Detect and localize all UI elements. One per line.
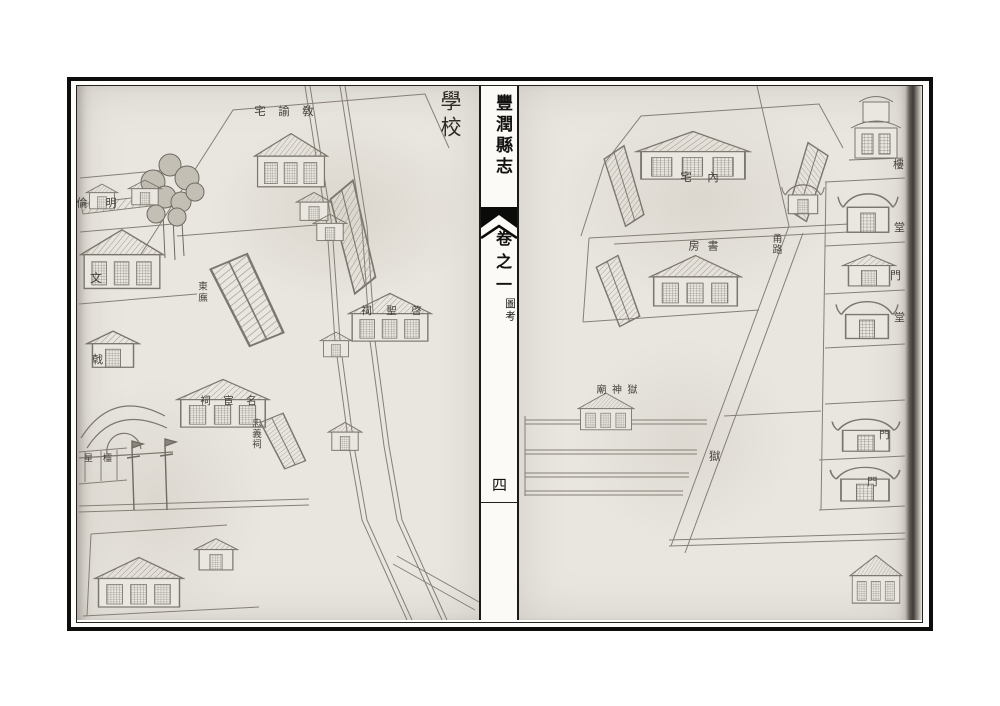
spine-section: 圖考 [503, 298, 518, 323]
ji-gate-label: 戟 [92, 351, 103, 367]
minglun-hall-label: 明倫 [79, 197, 125, 212]
right-map-drawing [519, 86, 905, 620]
east-wing-building [211, 254, 284, 346]
left-map-drawing [77, 86, 479, 620]
study-label: 書房 [677, 240, 722, 255]
upper-hall-building [838, 194, 898, 232]
upper-gate-label: 門 [890, 267, 901, 283]
spine-folio-number: 四 [492, 474, 507, 495]
right-page-yamen-map: 內宅 書房 甬路 獄神廟 獄 樓 堂 門 堂 門 門 [519, 86, 905, 620]
jail-god-temple-building [578, 393, 634, 430]
zhongyi-shrine-building [260, 413, 305, 469]
upper-hall-label: 堂 [894, 219, 905, 235]
page-edge-shadow [905, 86, 922, 620]
jail-label: 獄 [709, 448, 721, 464]
minghuan-shrine-label: 名宦祠 [187, 395, 262, 410]
bottom-right-building [850, 555, 902, 603]
tree-clump [141, 154, 204, 260]
mid-gate-building [832, 419, 900, 451]
jail-god-temple-label: 獄神廟 [590, 384, 638, 398]
mid-gate-label: 門 [879, 427, 890, 442]
lower-compound-hall [95, 558, 183, 608]
residence-west-annex [604, 146, 644, 227]
east-wing-label: 東廡 [194, 281, 208, 304]
tower-label: 樓 [893, 156, 904, 172]
qisheng-shrine-label: 啓聖祠 [348, 305, 428, 320]
instructor-residence-label: 敎諭宅 [238, 105, 320, 121]
instructor-residence-hall [255, 134, 328, 187]
mid-hall-label: 堂 [894, 309, 905, 325]
scanned-gazetteer-page: { "spine": { "title": "豐潤縣志", "volume": … [0, 0, 1000, 706]
pan-pond-bridge [79, 406, 173, 458]
wen-temple-label: 文 [90, 269, 102, 286]
inner-residence-label: 內宅 [666, 171, 726, 187]
left-page-school-map: 學校 敎諭宅 明倫 文 東廡 啓聖祠 名宦祠 忠義祠 戟 欞星 [77, 86, 479, 620]
lower-gate-building [830, 467, 900, 501]
mid-hall-building [836, 302, 898, 339]
lingxing-gate-poles [127, 439, 176, 510]
book-spine-column: 豐潤縣志 卷之一 圖考 四 [479, 86, 519, 620]
spine-title: 豐潤縣志 [490, 94, 515, 178]
road-gate-tower [320, 332, 352, 357]
lingxing-gate-label: 欞星 [77, 453, 115, 466]
left-map-title: 學校 [435, 90, 465, 142]
spine-divider-line [481, 502, 517, 503]
road-gate-tower [328, 422, 362, 450]
study-annex [596, 255, 639, 326]
path-label: 甬路 [768, 233, 783, 255]
upper-gate-building [843, 255, 895, 286]
lower-compound-gate [195, 539, 238, 570]
zhongyi-shrine-label: 忠義祠 [248, 418, 262, 450]
corner-tower-building [849, 97, 903, 161]
spine-volume: 卷之一 [490, 230, 514, 299]
study-hall [650, 256, 741, 306]
lower-gate-label: 門 [867, 474, 878, 489]
